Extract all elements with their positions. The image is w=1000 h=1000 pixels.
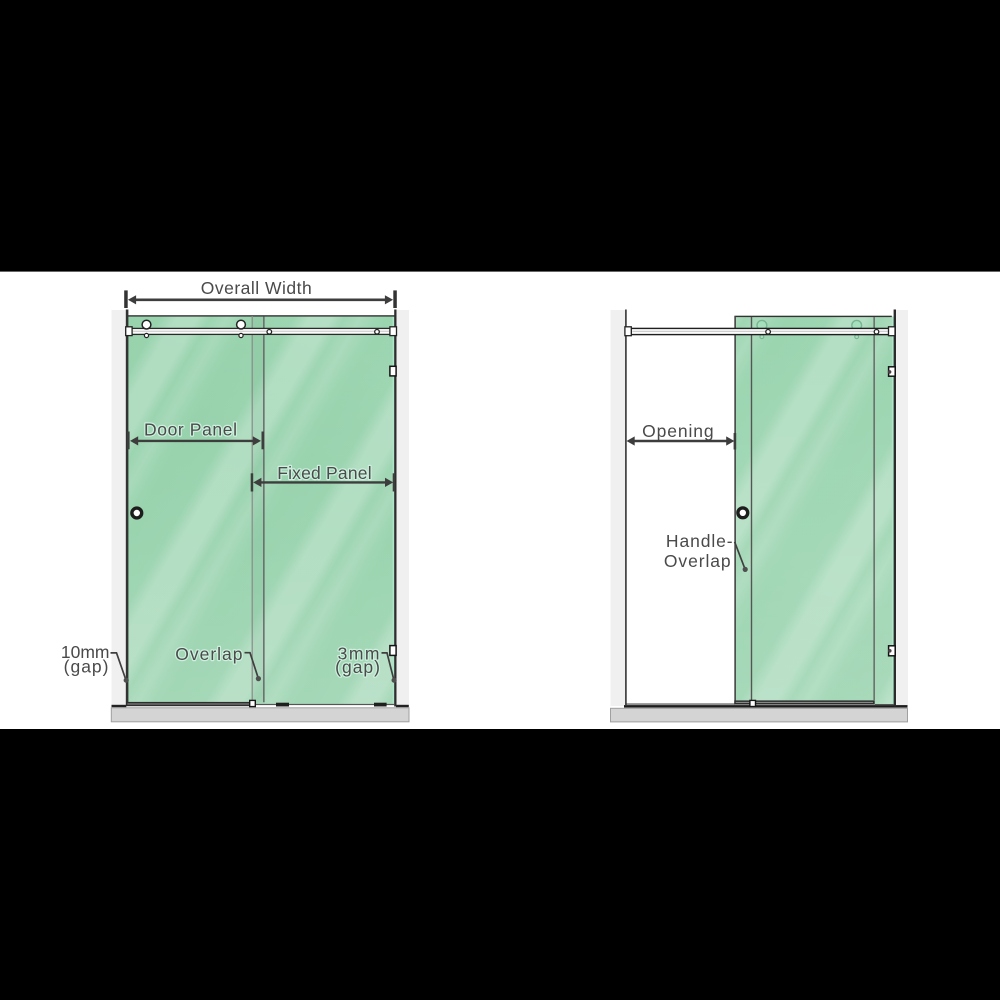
svg-text:Fixed Panel: Fixed Panel	[277, 463, 372, 483]
svg-text:Opening: Opening	[642, 421, 714, 441]
svg-text:(gap): (gap)	[64, 657, 110, 677]
svg-text:Door Panel: Door Panel	[144, 420, 238, 440]
svg-text:(gap): (gap)	[335, 657, 381, 677]
svg-text:Handle-: Handle-	[666, 531, 734, 551]
svg-text:Overall Width: Overall Width	[201, 278, 313, 298]
svg-text:Overlap: Overlap	[664, 551, 732, 571]
svg-text:Overlap: Overlap	[175, 644, 243, 664]
